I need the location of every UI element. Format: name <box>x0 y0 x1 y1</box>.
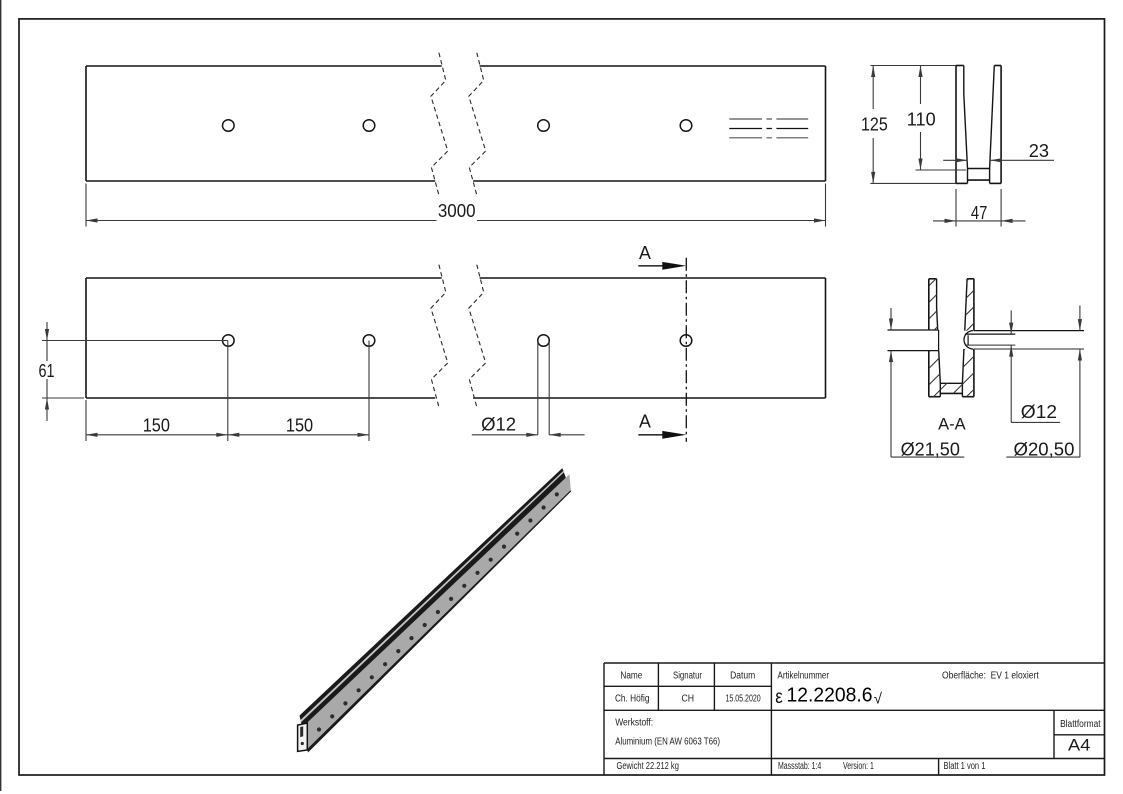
svg-text:Werkstoff:: Werkstoff: <box>615 717 653 728</box>
svg-text:Version: 1: Version: 1 <box>843 761 874 772</box>
svg-text:12.2208.6: 12.2208.6 <box>787 684 873 707</box>
svg-text:15.05.2020: 15.05.2020 <box>726 694 762 705</box>
svg-text:Name: Name <box>620 671 642 682</box>
svg-text:CH: CH <box>682 694 695 705</box>
svg-text:√: √ <box>874 691 883 708</box>
svg-text:Datum: Datum <box>730 671 755 682</box>
svg-text:A4: A4 <box>1068 735 1090 754</box>
svg-text:Ø12: Ø12 <box>1021 401 1057 422</box>
svg-text:150: 150 <box>286 415 313 436</box>
svg-text:Ø12: Ø12 <box>481 414 516 435</box>
svg-text:110: 110 <box>907 109 936 130</box>
svg-text:Blatt 1 von 1: Blatt 1 von 1 <box>944 761 986 772</box>
svg-text:Ch. Höfig: Ch. Höfig <box>615 694 650 705</box>
svg-text:A-A: A-A <box>938 416 966 434</box>
svg-text:Signatur: Signatur <box>673 671 703 682</box>
svg-text:A: A <box>639 412 651 432</box>
svg-text:Aluminium (EN AW 6063 T66): Aluminium (EN AW 6063 T66) <box>615 737 720 748</box>
svg-text:125: 125 <box>861 114 888 135</box>
svg-text:Gewicht 22.212 kg: Gewicht 22.212 kg <box>617 761 679 772</box>
svg-text:A: A <box>639 243 651 263</box>
svg-text:Ø20,50: Ø20,50 <box>1014 439 1075 460</box>
svg-text:3000: 3000 <box>438 200 476 221</box>
svg-text:61: 61 <box>39 360 55 381</box>
svg-text:150: 150 <box>143 415 170 436</box>
svg-text:ε: ε <box>775 687 783 708</box>
svg-text:47: 47 <box>971 202 987 223</box>
svg-text:Massstab: 1:4: Massstab: 1:4 <box>778 761 822 772</box>
svg-text:Oberfläche: EV 1 eloxiert: Oberfläche: EV 1 eloxiert <box>942 671 1039 682</box>
svg-text:Ø21,50: Ø21,50 <box>901 439 960 460</box>
svg-text:23: 23 <box>1029 140 1049 161</box>
svg-text:Blattformat: Blattformat <box>1060 719 1101 730</box>
svg-text:Artikelnummer: Artikelnummer <box>778 671 830 682</box>
